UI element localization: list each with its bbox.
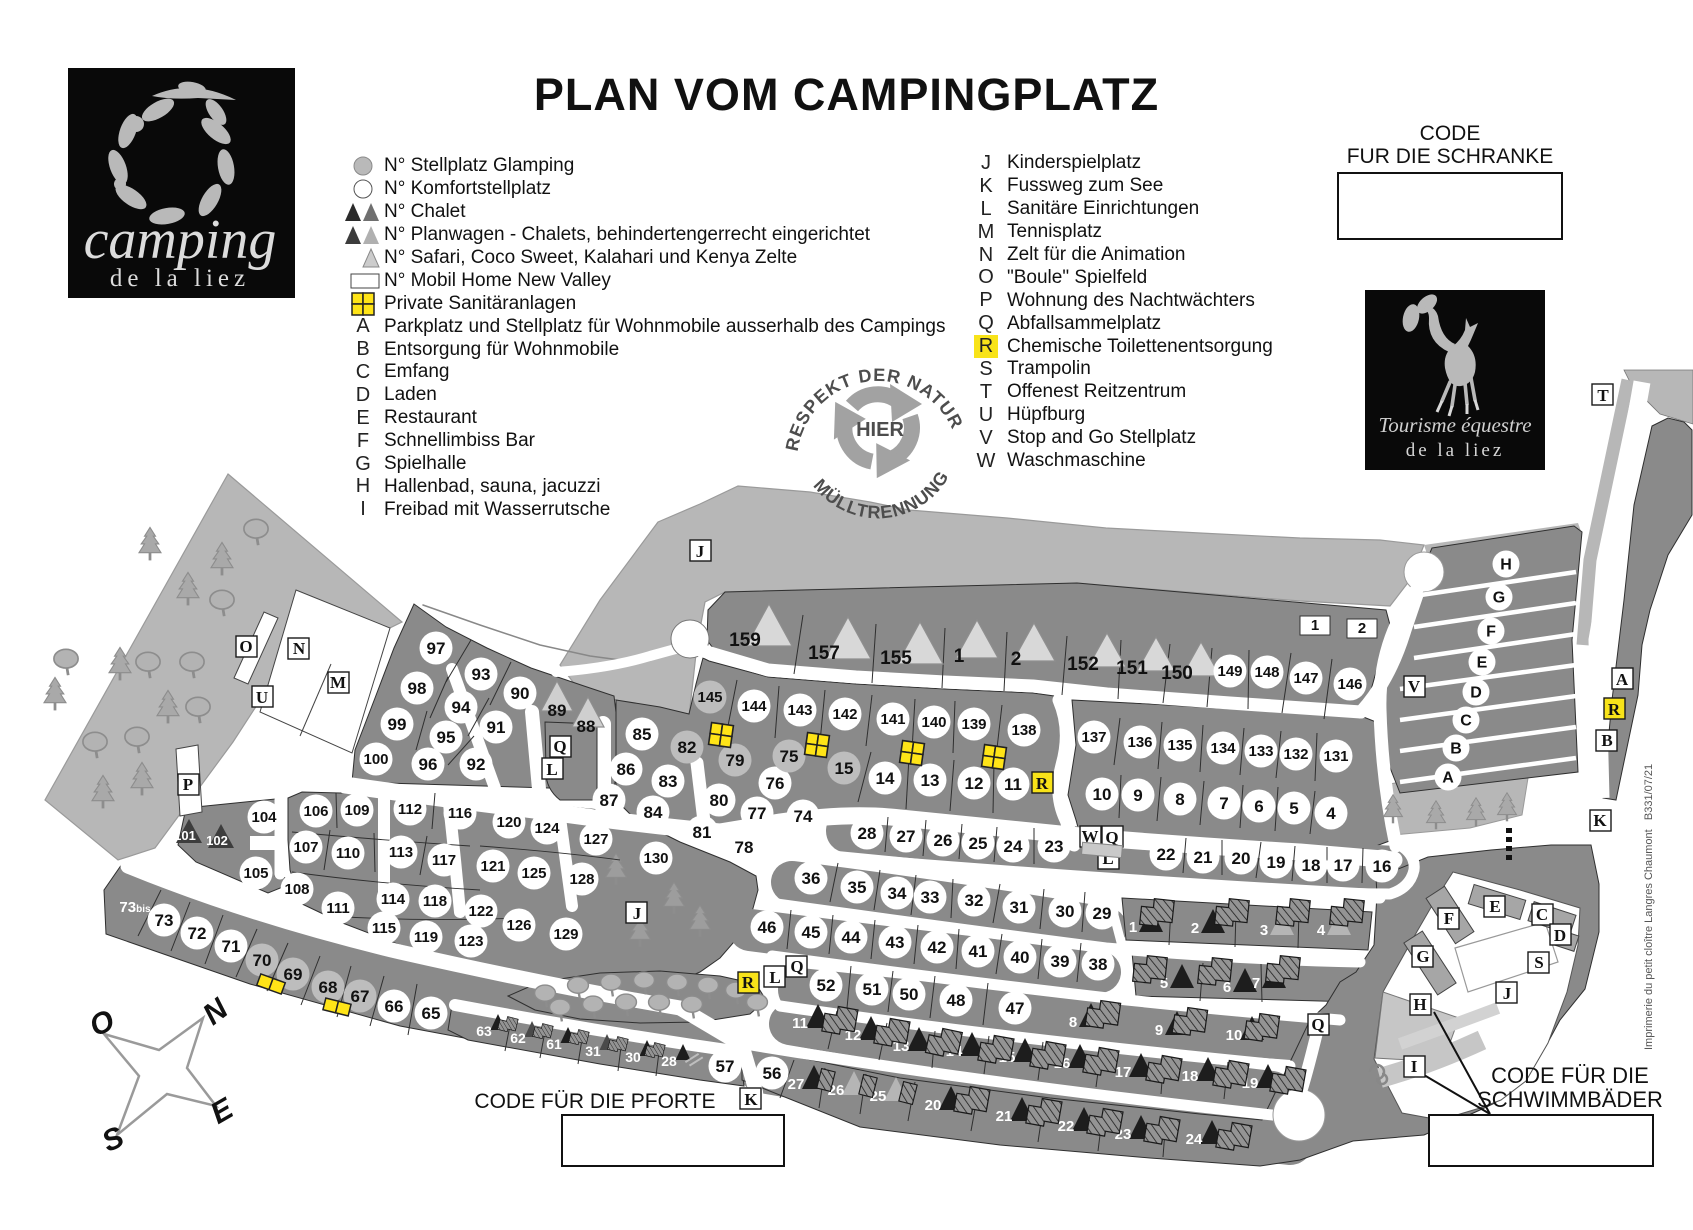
svg-text:15: 15 bbox=[835, 759, 854, 778]
svg-text:69: 69 bbox=[284, 965, 303, 984]
svg-text:Imprimerie du petit cloître La: Imprimerie du petit cloître Langres Chau… bbox=[1643, 764, 1655, 1050]
svg-text:K: K bbox=[1593, 811, 1607, 830]
svg-text:A: A bbox=[1442, 770, 1454, 787]
svg-text:12: 12 bbox=[965, 774, 984, 793]
svg-text:E: E bbox=[1477, 655, 1488, 672]
svg-text:159: 159 bbox=[729, 630, 761, 651]
svg-text:89: 89 bbox=[548, 701, 567, 720]
svg-text:23: 23 bbox=[1045, 837, 1064, 856]
svg-text:3: 3 bbox=[1260, 922, 1268, 939]
svg-text:152: 152 bbox=[1067, 654, 1099, 675]
svg-text:79: 79 bbox=[726, 751, 745, 770]
svg-text:151: 151 bbox=[1116, 658, 1148, 679]
svg-text:65: 65 bbox=[422, 1004, 441, 1023]
svg-text:76: 76 bbox=[766, 774, 785, 793]
svg-text:E: E bbox=[1489, 897, 1500, 916]
svg-text:Q: Q bbox=[553, 737, 566, 756]
svg-text:21: 21 bbox=[996, 1108, 1013, 1125]
svg-text:74: 74 bbox=[794, 807, 813, 826]
svg-text:115: 115 bbox=[372, 920, 396, 937]
svg-text:29: 29 bbox=[1093, 904, 1112, 923]
svg-text:68: 68 bbox=[319, 978, 338, 997]
svg-text:26: 26 bbox=[934, 831, 953, 850]
svg-text:20: 20 bbox=[925, 1097, 942, 1114]
svg-text:20: 20 bbox=[1232, 849, 1251, 868]
svg-text:camping: camping bbox=[84, 209, 277, 271]
svg-text:100: 100 bbox=[363, 751, 388, 768]
svg-text:8: 8 bbox=[1069, 1014, 1077, 1031]
svg-text:N: N bbox=[197, 991, 235, 1031]
svg-text:62: 62 bbox=[510, 1030, 526, 1046]
svg-text:144: 144 bbox=[741, 698, 767, 715]
svg-text:93: 93 bbox=[472, 665, 491, 684]
svg-text:K: K bbox=[744, 1090, 758, 1109]
svg-text:31: 31 bbox=[585, 1043, 601, 1059]
svg-text:27: 27 bbox=[897, 827, 916, 846]
svg-text:N: N bbox=[293, 639, 306, 658]
svg-text:L: L bbox=[769, 968, 780, 987]
svg-text:11: 11 bbox=[1004, 775, 1022, 794]
svg-text:133: 133 bbox=[1248, 743, 1273, 760]
svg-text:35: 35 bbox=[848, 878, 867, 897]
svg-text:33: 33 bbox=[921, 888, 940, 907]
svg-text:150: 150 bbox=[1161, 663, 1193, 684]
svg-text:S: S bbox=[1534, 953, 1543, 972]
svg-text:138: 138 bbox=[1011, 722, 1036, 739]
svg-text:99: 99 bbox=[388, 715, 407, 734]
svg-text:67: 67 bbox=[351, 987, 370, 1006]
svg-text:U: U bbox=[256, 688, 268, 707]
svg-text:87: 87 bbox=[600, 791, 619, 810]
svg-text:H: H bbox=[1500, 557, 1512, 574]
svg-text:97: 97 bbox=[427, 639, 446, 658]
svg-text:105: 105 bbox=[243, 865, 268, 882]
svg-text:A: A bbox=[1616, 670, 1629, 689]
svg-text:2: 2 bbox=[1191, 920, 1199, 937]
svg-text:V: V bbox=[1408, 677, 1421, 696]
svg-text:96: 96 bbox=[419, 755, 438, 774]
svg-text:46: 46 bbox=[758, 918, 777, 937]
svg-text:121: 121 bbox=[480, 858, 505, 875]
svg-text:134: 134 bbox=[1210, 740, 1236, 757]
svg-text:F: F bbox=[1486, 624, 1496, 641]
svg-text:90: 90 bbox=[511, 684, 530, 703]
svg-text:2: 2 bbox=[1011, 649, 1022, 670]
svg-text:30: 30 bbox=[625, 1049, 641, 1065]
svg-text:14: 14 bbox=[876, 769, 895, 788]
svg-text:51: 51 bbox=[863, 980, 882, 999]
svg-text:1: 1 bbox=[1311, 617, 1319, 634]
svg-text:T: T bbox=[1597, 386, 1609, 405]
svg-text:G: G bbox=[1493, 590, 1505, 607]
svg-text:43: 43 bbox=[886, 933, 905, 952]
svg-text:56: 56 bbox=[763, 1064, 782, 1083]
svg-text:39: 39 bbox=[1051, 952, 1070, 971]
svg-text:4: 4 bbox=[1317, 922, 1326, 939]
svg-text:108: 108 bbox=[284, 881, 309, 898]
svg-text:127: 127 bbox=[583, 831, 608, 848]
svg-text:30: 30 bbox=[1056, 902, 1075, 921]
svg-text:114: 114 bbox=[381, 891, 406, 908]
svg-text:82: 82 bbox=[678, 738, 697, 757]
svg-text:155: 155 bbox=[880, 648, 912, 669]
svg-text:31: 31 bbox=[1010, 898, 1029, 917]
svg-text:10: 10 bbox=[1226, 1027, 1243, 1044]
svg-text:128: 128 bbox=[569, 871, 594, 888]
svg-text:38: 38 bbox=[1089, 955, 1108, 974]
svg-text:28: 28 bbox=[661, 1053, 677, 1069]
svg-text:Q: Q bbox=[790, 957, 803, 976]
svg-text:45: 45 bbox=[802, 923, 821, 942]
svg-text:112: 112 bbox=[398, 801, 422, 818]
svg-text:123: 123 bbox=[458, 933, 483, 950]
svg-text:132: 132 bbox=[1283, 746, 1308, 763]
svg-text:129: 129 bbox=[553, 926, 578, 943]
svg-text:C: C bbox=[1536, 905, 1548, 924]
svg-text:de la liez: de la liez bbox=[1406, 440, 1505, 461]
svg-text:107: 107 bbox=[293, 839, 318, 856]
svg-text:125: 125 bbox=[521, 865, 546, 882]
svg-text:R: R bbox=[742, 973, 755, 992]
svg-text:I: I bbox=[1411, 1057, 1418, 1076]
svg-text:143: 143 bbox=[787, 702, 812, 719]
svg-text:40: 40 bbox=[1011, 948, 1030, 967]
svg-text:94: 94 bbox=[452, 698, 471, 717]
svg-text:118: 118 bbox=[423, 893, 447, 910]
svg-text:F: F bbox=[1444, 909, 1454, 928]
svg-text:11: 11 bbox=[792, 1015, 808, 1032]
svg-text:52: 52 bbox=[817, 976, 836, 995]
svg-text:86: 86 bbox=[617, 760, 636, 779]
svg-text:73: 73 bbox=[155, 911, 174, 930]
svg-text:de la liez: de la liez bbox=[110, 265, 250, 292]
svg-text:21: 21 bbox=[1194, 848, 1213, 867]
svg-text:124: 124 bbox=[534, 820, 560, 837]
svg-text:110: 110 bbox=[336, 845, 360, 862]
svg-text:G: G bbox=[1416, 947, 1429, 966]
svg-text:140: 140 bbox=[921, 714, 946, 731]
svg-text:19: 19 bbox=[1267, 853, 1286, 872]
svg-text:126: 126 bbox=[506, 917, 531, 934]
svg-text:9: 9 bbox=[1133, 786, 1142, 805]
svg-text:122: 122 bbox=[468, 903, 493, 920]
svg-text:83: 83 bbox=[659, 772, 678, 791]
svg-text:61: 61 bbox=[546, 1036, 562, 1052]
svg-text:137: 137 bbox=[1081, 729, 1106, 746]
svg-text:72: 72 bbox=[188, 924, 207, 943]
svg-text:63: 63 bbox=[476, 1023, 492, 1039]
svg-text:71: 71 bbox=[222, 937, 241, 956]
svg-text:5: 5 bbox=[1289, 799, 1298, 818]
svg-text:70: 70 bbox=[253, 951, 272, 970]
svg-text:136: 136 bbox=[1127, 734, 1152, 751]
svg-text:88: 88 bbox=[577, 717, 596, 736]
svg-text:146: 146 bbox=[1337, 676, 1362, 693]
svg-text:M: M bbox=[330, 673, 346, 692]
svg-text:22: 22 bbox=[1058, 1118, 1075, 1135]
svg-text:142: 142 bbox=[832, 706, 857, 723]
svg-text:149: 149 bbox=[1217, 663, 1242, 680]
svg-text:44: 44 bbox=[842, 928, 861, 947]
svg-text:32: 32 bbox=[965, 891, 984, 910]
svg-text:18: 18 bbox=[1302, 856, 1321, 875]
svg-text:135: 135 bbox=[1167, 737, 1192, 754]
svg-text:113: 113 bbox=[389, 844, 413, 861]
svg-text:D: D bbox=[1470, 685, 1482, 702]
svg-text:L: L bbox=[546, 760, 557, 779]
svg-text:R: R bbox=[1608, 700, 1621, 719]
svg-text:41: 41 bbox=[969, 942, 988, 961]
svg-text:O: O bbox=[239, 637, 252, 656]
svg-text:36: 36 bbox=[802, 869, 821, 888]
svg-text:B: B bbox=[1601, 731, 1612, 750]
svg-text:75: 75 bbox=[780, 747, 799, 766]
svg-text:130: 130 bbox=[643, 850, 668, 867]
svg-text:42: 42 bbox=[928, 938, 947, 957]
svg-text:R: R bbox=[1036, 774, 1049, 793]
svg-text:13: 13 bbox=[921, 771, 940, 790]
svg-text:116: 116 bbox=[448, 805, 472, 822]
svg-text:B: B bbox=[1450, 741, 1462, 758]
svg-text:6: 6 bbox=[1254, 797, 1263, 816]
svg-text:P: P bbox=[183, 775, 193, 794]
svg-text:47: 47 bbox=[1006, 999, 1025, 1018]
svg-text:16: 16 bbox=[1373, 857, 1392, 876]
svg-text:10: 10 bbox=[1093, 785, 1112, 804]
svg-text:D: D bbox=[1554, 926, 1566, 945]
svg-text:24: 24 bbox=[1004, 837, 1023, 856]
svg-text:157: 157 bbox=[808, 643, 840, 664]
svg-text:17: 17 bbox=[1115, 1064, 1132, 1081]
svg-text:141: 141 bbox=[880, 711, 905, 728]
svg-text:109: 109 bbox=[344, 802, 369, 819]
svg-text:2: 2 bbox=[1358, 620, 1366, 637]
svg-text:17: 17 bbox=[1334, 856, 1353, 875]
svg-text:J: J bbox=[633, 904, 642, 923]
svg-text:Tourisme équestre: Tourisme équestre bbox=[1378, 413, 1531, 437]
svg-text:98: 98 bbox=[408, 679, 427, 698]
svg-text:81: 81 bbox=[693, 823, 712, 842]
svg-text:22: 22 bbox=[1157, 845, 1176, 864]
svg-text:24: 24 bbox=[1186, 1131, 1203, 1148]
svg-text:77: 77 bbox=[748, 804, 767, 823]
svg-text:J: J bbox=[1503, 984, 1512, 1003]
svg-text:80: 80 bbox=[710, 791, 729, 810]
svg-text:95: 95 bbox=[437, 728, 456, 747]
svg-text:111: 111 bbox=[326, 900, 349, 917]
svg-text:8: 8 bbox=[1175, 790, 1184, 809]
svg-text:102: 102 bbox=[206, 833, 228, 848]
svg-text:120: 120 bbox=[496, 814, 521, 831]
svg-text:J: J bbox=[696, 542, 705, 561]
svg-text:1: 1 bbox=[1129, 919, 1137, 936]
svg-text:91: 91 bbox=[487, 718, 506, 737]
svg-text:85: 85 bbox=[633, 725, 652, 744]
svg-text:78: 78 bbox=[735, 838, 754, 857]
svg-text:C: C bbox=[1460, 713, 1472, 730]
svg-text:101: 101 bbox=[174, 828, 196, 843]
svg-text:84: 84 bbox=[644, 803, 663, 822]
svg-text:Q: Q bbox=[1311, 1015, 1324, 1034]
svg-text:7: 7 bbox=[1252, 975, 1260, 992]
svg-text:92: 92 bbox=[467, 755, 486, 774]
svg-text:106: 106 bbox=[303, 803, 328, 820]
svg-text:4: 4 bbox=[1326, 804, 1336, 823]
svg-text:27: 27 bbox=[788, 1076, 805, 1093]
svg-text:119: 119 bbox=[414, 929, 438, 946]
svg-text:148: 148 bbox=[1254, 664, 1279, 681]
svg-text:1: 1 bbox=[954, 646, 965, 667]
svg-text:104: 104 bbox=[251, 809, 277, 826]
svg-text:66: 66 bbox=[385, 997, 404, 1016]
svg-text:48: 48 bbox=[947, 991, 966, 1010]
svg-text:147: 147 bbox=[1293, 670, 1318, 687]
svg-text:117: 117 bbox=[432, 852, 456, 869]
svg-text:57: 57 bbox=[716, 1057, 735, 1076]
svg-text:7: 7 bbox=[1219, 794, 1228, 813]
svg-text:18: 18 bbox=[1182, 1068, 1199, 1085]
svg-text:131: 131 bbox=[1323, 748, 1348, 765]
svg-text:34: 34 bbox=[888, 884, 907, 903]
svg-text:28: 28 bbox=[858, 824, 877, 843]
svg-text:139: 139 bbox=[961, 716, 986, 733]
svg-text:50: 50 bbox=[900, 985, 919, 1004]
svg-text:9: 9 bbox=[1155, 1022, 1163, 1039]
svg-text:25: 25 bbox=[969, 834, 988, 853]
svg-text:H: H bbox=[1413, 995, 1426, 1014]
svg-text:145: 145 bbox=[697, 689, 722, 706]
